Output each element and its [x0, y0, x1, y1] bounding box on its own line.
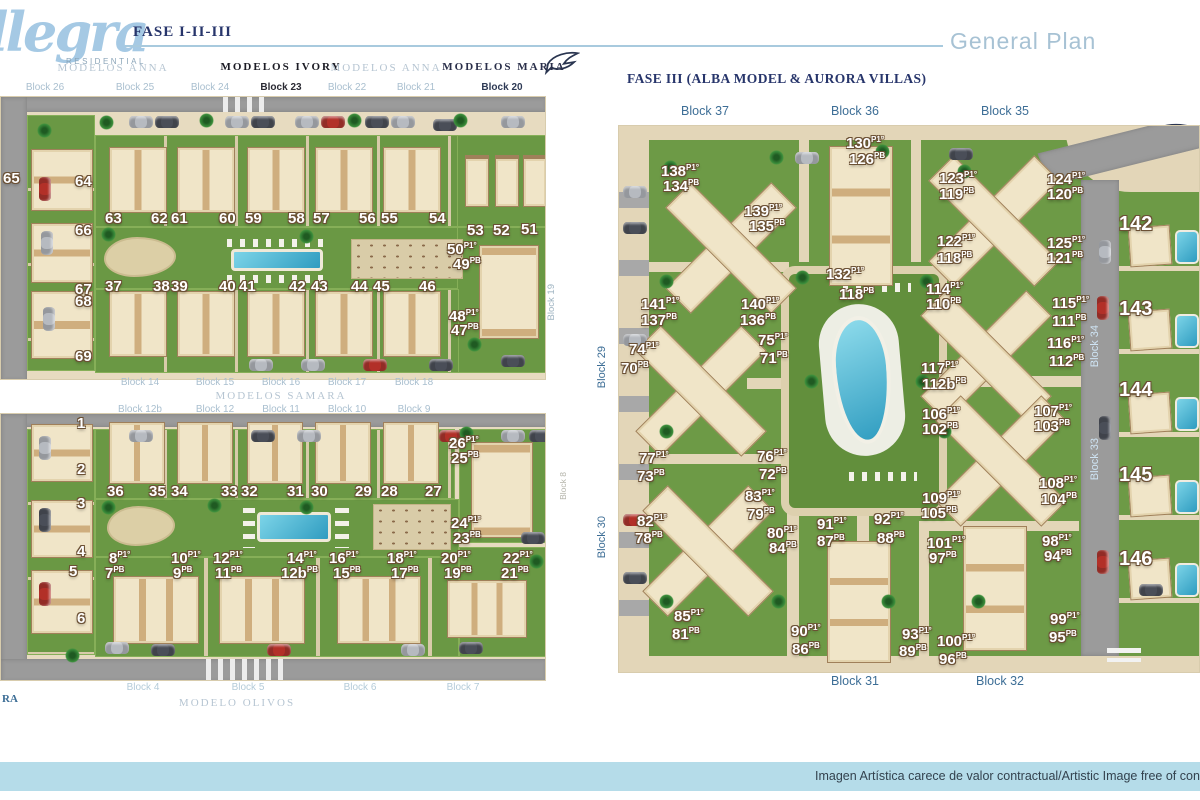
- unit-92: 92P1°: [874, 512, 904, 527]
- car-icon: [251, 430, 275, 442]
- unit-121: 121PB: [1047, 251, 1083, 266]
- unit-111: 111PB: [1052, 314, 1087, 329]
- bldg: [247, 147, 305, 213]
- unit-35: 35: [149, 484, 166, 499]
- label-block-15: Block 15: [196, 378, 234, 388]
- label-modelo-olivos: MODELO OLIVOS: [179, 698, 295, 709]
- label-block-20: Block 20: [481, 83, 522, 93]
- car-icon: [363, 359, 387, 371]
- car-icon: [1139, 584, 1163, 596]
- unit-136: 136PB: [740, 313, 776, 328]
- unit-45: 45: [373, 279, 390, 294]
- unit-106: 106P1°: [922, 407, 960, 422]
- car-icon: [41, 231, 53, 255]
- unit-122: 122P1°: [937, 234, 975, 249]
- car-icon: [529, 430, 546, 442]
- palm-icon: [453, 113, 468, 128]
- house: [523, 155, 546, 207]
- label-block-22: Block 22: [328, 83, 366, 93]
- unit-101: 101P1°: [927, 536, 965, 551]
- label-block-16: Block 16: [262, 378, 300, 388]
- unit-90: 90P1°: [791, 624, 821, 639]
- label-block-32: Block 32: [976, 675, 1024, 688]
- unit-130: 130P1°: [846, 136, 884, 151]
- label-block-12: Block 12: [196, 405, 234, 415]
- palm-icon: [467, 337, 482, 352]
- car-icon: [459, 642, 483, 654]
- car-icon: [1097, 550, 1109, 574]
- unit-98: 98P1°: [1042, 534, 1072, 549]
- label-block-9: Block 9: [398, 405, 431, 415]
- car-icon: [623, 222, 647, 234]
- unit-2: 2: [77, 462, 85, 477]
- car-icon: [301, 359, 325, 371]
- bldg: [315, 422, 371, 484]
- label-block-29: Block 29: [597, 346, 608, 388]
- unit-50: 50P1°: [447, 242, 477, 257]
- car-icon: [39, 177, 51, 201]
- general-plan-page: llegra RESIDENTIAL FASE I-II-III General…: [0, 0, 1200, 800]
- palm-icon: [199, 113, 214, 128]
- bldg: [315, 291, 373, 357]
- unit-89: 89PB: [899, 644, 927, 659]
- car-icon: [295, 116, 319, 128]
- car-icon: [521, 532, 545, 544]
- unit-36: 36: [107, 484, 124, 499]
- unit-40: 40: [219, 279, 236, 294]
- car-icon: [129, 116, 153, 128]
- palm-icon: [659, 424, 674, 439]
- path: [1119, 182, 1200, 187]
- unit-47: 47PB: [451, 323, 479, 338]
- unit-9: 9PB: [173, 566, 192, 581]
- label-block-4: Block 4: [127, 683, 160, 693]
- unit-8: 8P1°: [109, 551, 130, 566]
- label-block-8: Block 8: [559, 472, 568, 500]
- palm-icon: [101, 227, 116, 242]
- unit-87: 87PB: [817, 534, 845, 549]
- unit-57: 57: [313, 211, 330, 226]
- unit-75: 75P1°: [758, 333, 788, 348]
- bldg: [315, 147, 373, 213]
- label-modelos-anna: MODELOS ANNA: [57, 63, 168, 74]
- label-block-24: Block 24: [191, 83, 229, 93]
- car-icon: [401, 644, 425, 656]
- unit-112b: 112bPB: [922, 377, 967, 392]
- unit-71: 71PB: [760, 351, 788, 366]
- unit-88: 88PB: [877, 531, 905, 546]
- palm-icon: [771, 594, 786, 609]
- car-icon: [225, 116, 249, 128]
- terrace: [373, 504, 451, 550]
- car-icon: [105, 642, 129, 654]
- palm-icon: [881, 594, 896, 609]
- poolwater: [231, 249, 323, 271]
- unit-44: 44: [351, 279, 368, 294]
- unit-135: 135PB: [749, 219, 785, 234]
- unit-42: 42: [289, 279, 306, 294]
- unit-83: 83P1°: [745, 489, 775, 504]
- label-block-18: Block 18: [395, 378, 433, 388]
- unit-52: 52: [493, 223, 510, 238]
- unit-26: 26P1°: [449, 436, 479, 451]
- palm-icon: [207, 498, 222, 513]
- unit-118: 118PB: [839, 287, 874, 302]
- palm-icon: [795, 270, 810, 285]
- unit-43: 43: [311, 279, 328, 294]
- unit-20: 20P1°: [441, 551, 471, 566]
- unit-125: 125P1°: [1047, 236, 1085, 251]
- unit-76: 76P1°: [757, 449, 787, 464]
- car-icon: [365, 116, 389, 128]
- vpool: [1175, 314, 1199, 348]
- palm-icon: [659, 274, 674, 289]
- label-ra: RA: [2, 694, 18, 705]
- car-icon: [501, 116, 525, 128]
- unit-53: 53: [467, 223, 484, 238]
- sunbh: [849, 472, 917, 481]
- bldga: [219, 576, 305, 644]
- car-icon: [129, 430, 153, 442]
- unit-27: 27: [425, 484, 442, 499]
- unit-6: 6: [77, 611, 85, 626]
- unit-51: 51: [521, 222, 538, 237]
- unit-102: 102PB: [922, 422, 958, 437]
- label-modelos-samara: MODELOS SAMARA: [216, 391, 347, 402]
- palm-icon: [299, 500, 314, 515]
- xwalk2: [1107, 648, 1141, 662]
- unit-115: 115P1°: [1052, 296, 1089, 311]
- panel-lower-left: 1234563635343332313029282726P1°25PB24P1°…: [0, 413, 546, 681]
- unit-41: 41: [239, 279, 256, 294]
- unit-10: 10P1°: [171, 551, 201, 566]
- label-modelos-ivory: MODELOS IVORY: [220, 62, 341, 73]
- panel-fase3: 138P1°134PB139P1°135PB141P1°137PB140P1°1…: [618, 125, 1200, 673]
- unit-77: 77P1°: [639, 451, 669, 466]
- unit-86: 86PB: [792, 642, 820, 657]
- label-block-14: Block 14: [121, 378, 159, 388]
- unit-14: 14P1°: [287, 551, 317, 566]
- road: [1, 97, 546, 112]
- palm-icon: [971, 594, 986, 609]
- label-block-35: Block 35: [981, 105, 1029, 118]
- unit-32: 32: [241, 484, 258, 499]
- unit-138: 138P1°: [661, 164, 699, 179]
- sunbv: [335, 508, 349, 548]
- bldg: [177, 291, 235, 357]
- label-block-7: Block 7: [447, 683, 480, 693]
- label-block-37: Block 37: [681, 105, 729, 118]
- unit-100: 100P1°: [937, 634, 975, 649]
- palm-icon: [101, 500, 116, 515]
- car-icon: [251, 116, 275, 128]
- label-block-30: Block 30: [597, 516, 608, 558]
- unit-3: 3: [77, 496, 85, 511]
- palm-icon: [99, 115, 114, 130]
- car-icon: [795, 152, 819, 164]
- unit-17: 17PB: [391, 566, 419, 581]
- unit-12b: 12bPB: [281, 566, 318, 581]
- unit-96: 96PB: [939, 652, 967, 667]
- header-divider: [125, 45, 943, 47]
- palm-icon: [299, 229, 314, 244]
- unit-82: 82P1°: [637, 514, 667, 529]
- unit-1: 1: [77, 416, 85, 431]
- unit-112: 112PB: [1049, 354, 1084, 369]
- unit-72: 72PB: [759, 467, 787, 482]
- car-icon: [623, 186, 647, 198]
- unit-84: 84PB: [769, 541, 797, 556]
- unit-97: 97PB: [929, 551, 957, 566]
- unit-46: 46: [419, 279, 436, 294]
- unit-22: 22P1°: [503, 551, 533, 566]
- bldg: [383, 291, 441, 357]
- label-block-5: Block 5: [232, 683, 265, 693]
- car-icon: [1099, 240, 1111, 264]
- palm-icon: [65, 648, 80, 663]
- roadv: [1, 97, 27, 380]
- path: [911, 140, 921, 262]
- unit-31: 31: [287, 484, 304, 499]
- car-icon: [39, 508, 51, 532]
- car-icon: [267, 644, 291, 656]
- label-block-11: Block 11: [262, 405, 300, 415]
- unit-38: 38: [153, 279, 170, 294]
- label-block-26: Block 26: [26, 83, 64, 93]
- car-icon: [1099, 416, 1111, 440]
- unit-69: 69: [75, 349, 92, 364]
- unit-68: 68: [75, 294, 92, 309]
- house: [495, 155, 519, 207]
- sunbv: [243, 508, 255, 548]
- unit-91: 91P1°: [817, 517, 847, 532]
- label-block-12b: Block 12b: [118, 405, 162, 415]
- bldga: [447, 580, 527, 638]
- bldg: [383, 147, 441, 213]
- unit-64: 64: [75, 174, 92, 189]
- unit-74: 74P1°: [629, 342, 659, 357]
- unit-144: 144: [1119, 380, 1152, 400]
- unit-60: 60: [219, 211, 236, 226]
- unit-34: 34: [171, 484, 188, 499]
- poolwater: [257, 512, 331, 542]
- unit-107: 107P1°: [1034, 404, 1072, 419]
- unit-114: 114P1°: [926, 282, 963, 297]
- unit-120: 120PB: [1047, 187, 1083, 202]
- unit-137: 137PB: [641, 313, 677, 328]
- unit-19: 19PB: [444, 566, 472, 581]
- unit-33: 33: [221, 484, 238, 499]
- unit-5: 5: [69, 564, 77, 579]
- unit-65: 65: [3, 171, 20, 186]
- car-icon: [1097, 296, 1109, 320]
- unit-139: 139P1°: [744, 204, 782, 219]
- unit-24: 24P1°: [451, 516, 481, 531]
- vpool: [1175, 480, 1199, 514]
- unit-21: 21PB: [501, 566, 529, 581]
- bldg: [109, 147, 167, 213]
- label-block-6: Block 6: [344, 683, 377, 693]
- palm-icon: [769, 150, 784, 165]
- label-block-25: Block 25: [116, 83, 154, 93]
- unit-123: 123P1°: [939, 171, 977, 186]
- unit-85: 85P1°: [674, 609, 704, 624]
- car-icon: [43, 307, 55, 331]
- unit-58: 58: [288, 211, 305, 226]
- unit-37: 37: [105, 279, 122, 294]
- label-block-34: Block 34: [1090, 325, 1101, 367]
- unit-126: 126PB: [849, 152, 885, 167]
- unit-73: 73PB: [637, 469, 665, 484]
- disclaimer-text: Imagen Artística carece de valor contrac…: [815, 769, 1200, 783]
- car-icon: [429, 359, 453, 371]
- unit-18: 18P1°: [387, 551, 417, 566]
- car-icon: [249, 359, 273, 371]
- unit-23: 23PB: [453, 531, 481, 546]
- unit-61: 61: [171, 211, 188, 226]
- fase3-title: FASE III (ALBA MODEL & AURORA VILLAS): [627, 71, 926, 87]
- unit-7: 7PB: [105, 566, 124, 581]
- fase-label: FASE I-II-III: [133, 24, 232, 41]
- car-icon: [321, 116, 345, 128]
- unit-110: 110PB: [926, 297, 961, 312]
- car-icon: [39, 436, 51, 460]
- unit-105: 105PB: [921, 506, 957, 521]
- unit-49: 49PB: [453, 257, 481, 272]
- unit-109: 109P1°: [922, 491, 960, 506]
- unit-56: 56: [359, 211, 376, 226]
- logo-script-text: llegra: [0, 0, 147, 64]
- palm-icon: [804, 374, 819, 389]
- unit-28: 28: [381, 484, 398, 499]
- unit-54: 54: [429, 211, 446, 226]
- unit-15: 15PB: [333, 566, 361, 581]
- unit-16: 16P1°: [329, 551, 359, 566]
- bldg: [109, 291, 167, 357]
- palm-icon: [37, 123, 52, 138]
- page-title: General Plan: [950, 28, 1096, 55]
- unit-134: 134PB: [663, 179, 699, 194]
- label-block-10: Block 10: [328, 405, 366, 415]
- car-icon: [391, 116, 415, 128]
- unit-4: 4: [77, 544, 85, 559]
- unit-117: 117P1°: [921, 361, 958, 376]
- unit-66: 66: [75, 223, 92, 238]
- unit-30: 30: [311, 484, 328, 499]
- car-icon: [39, 582, 51, 606]
- label-modelos-maria: MODELOS MARIA: [442, 62, 565, 73]
- unit-103: 103PB: [1034, 419, 1070, 434]
- unit-25: 25PB: [451, 451, 479, 466]
- disclaimer-bar: Imagen Artística carece de valor contrac…: [0, 762, 1200, 791]
- unit-79: 79PB: [747, 507, 775, 522]
- unit-146: 146: [1119, 549, 1152, 569]
- palm-icon: [659, 594, 674, 609]
- unit-80: 80P1°: [767, 526, 797, 541]
- unit-70: 70PB: [621, 361, 649, 376]
- label-modelos-anna: MODELOS ANNA: [330, 63, 441, 74]
- path: [747, 378, 783, 389]
- unit-124: 124P1°: [1047, 172, 1085, 187]
- unit-11: 11PB: [215, 566, 242, 581]
- unit-143: 143: [1119, 299, 1152, 319]
- unit-142: 142: [1119, 214, 1152, 234]
- bldgv: [479, 245, 539, 339]
- car-icon: [949, 148, 973, 160]
- unit-81: 81PB: [672, 627, 700, 642]
- car-icon: [155, 116, 179, 128]
- unit-145: 145: [1119, 465, 1152, 485]
- vpool: [1175, 230, 1199, 264]
- unit-78: 78PB: [635, 531, 663, 546]
- bldga: [113, 576, 199, 644]
- unit-59: 59: [245, 211, 262, 226]
- car-icon: [623, 572, 647, 584]
- unit-119: 119PB: [939, 187, 974, 202]
- car-icon: [501, 355, 525, 367]
- label-block-21: Block 21: [397, 83, 435, 93]
- unit-12: 12P1°: [213, 551, 243, 566]
- panel-upper-left: 6564666768696362616059585756555453525150…: [0, 96, 546, 380]
- label-block-33: Block 33: [1090, 438, 1101, 480]
- car-icon: [501, 430, 525, 442]
- unit-39: 39: [171, 279, 188, 294]
- unit-104: 104PB: [1041, 492, 1077, 507]
- unit-29: 29: [355, 484, 372, 499]
- bldga: [337, 576, 421, 644]
- unit-93: 93P1°: [902, 627, 932, 642]
- label-block-36: Block 36: [831, 105, 879, 118]
- label-block-17: Block 17: [328, 378, 366, 388]
- vpool: [1175, 563, 1199, 597]
- car-icon: [151, 644, 175, 656]
- unit-55: 55: [381, 211, 398, 226]
- bldg: [177, 422, 233, 484]
- palm-icon: [347, 113, 362, 128]
- bldg: [383, 422, 439, 484]
- label-block-23: Block 23: [260, 83, 301, 93]
- vpool: [1175, 397, 1199, 431]
- bldg: [177, 147, 235, 213]
- unit-118: 118PB: [937, 251, 972, 266]
- unit-94: 94PB: [1044, 549, 1072, 564]
- unit-63: 63: [105, 211, 122, 226]
- unit-141: 141P1°: [641, 297, 679, 312]
- bldg: [247, 291, 305, 357]
- label-block-31: Block 31: [831, 675, 879, 688]
- house: [465, 155, 489, 207]
- unit-132: 132P1°: [826, 267, 864, 282]
- unit-116: 116P1°: [1047, 336, 1084, 351]
- car-icon: [297, 430, 321, 442]
- xwalk: [223, 97, 267, 112]
- xwalk: [206, 659, 284, 681]
- unit-95: 95PB: [1049, 630, 1077, 645]
- unit-62: 62: [151, 211, 168, 226]
- roadv: [1, 414, 27, 681]
- label-block-19: Block 19: [547, 284, 557, 320]
- unit-99: 99P1°: [1050, 612, 1080, 627]
- unit-140: 140P1°: [741, 297, 779, 312]
- unit-108: 108P1°: [1039, 476, 1077, 491]
